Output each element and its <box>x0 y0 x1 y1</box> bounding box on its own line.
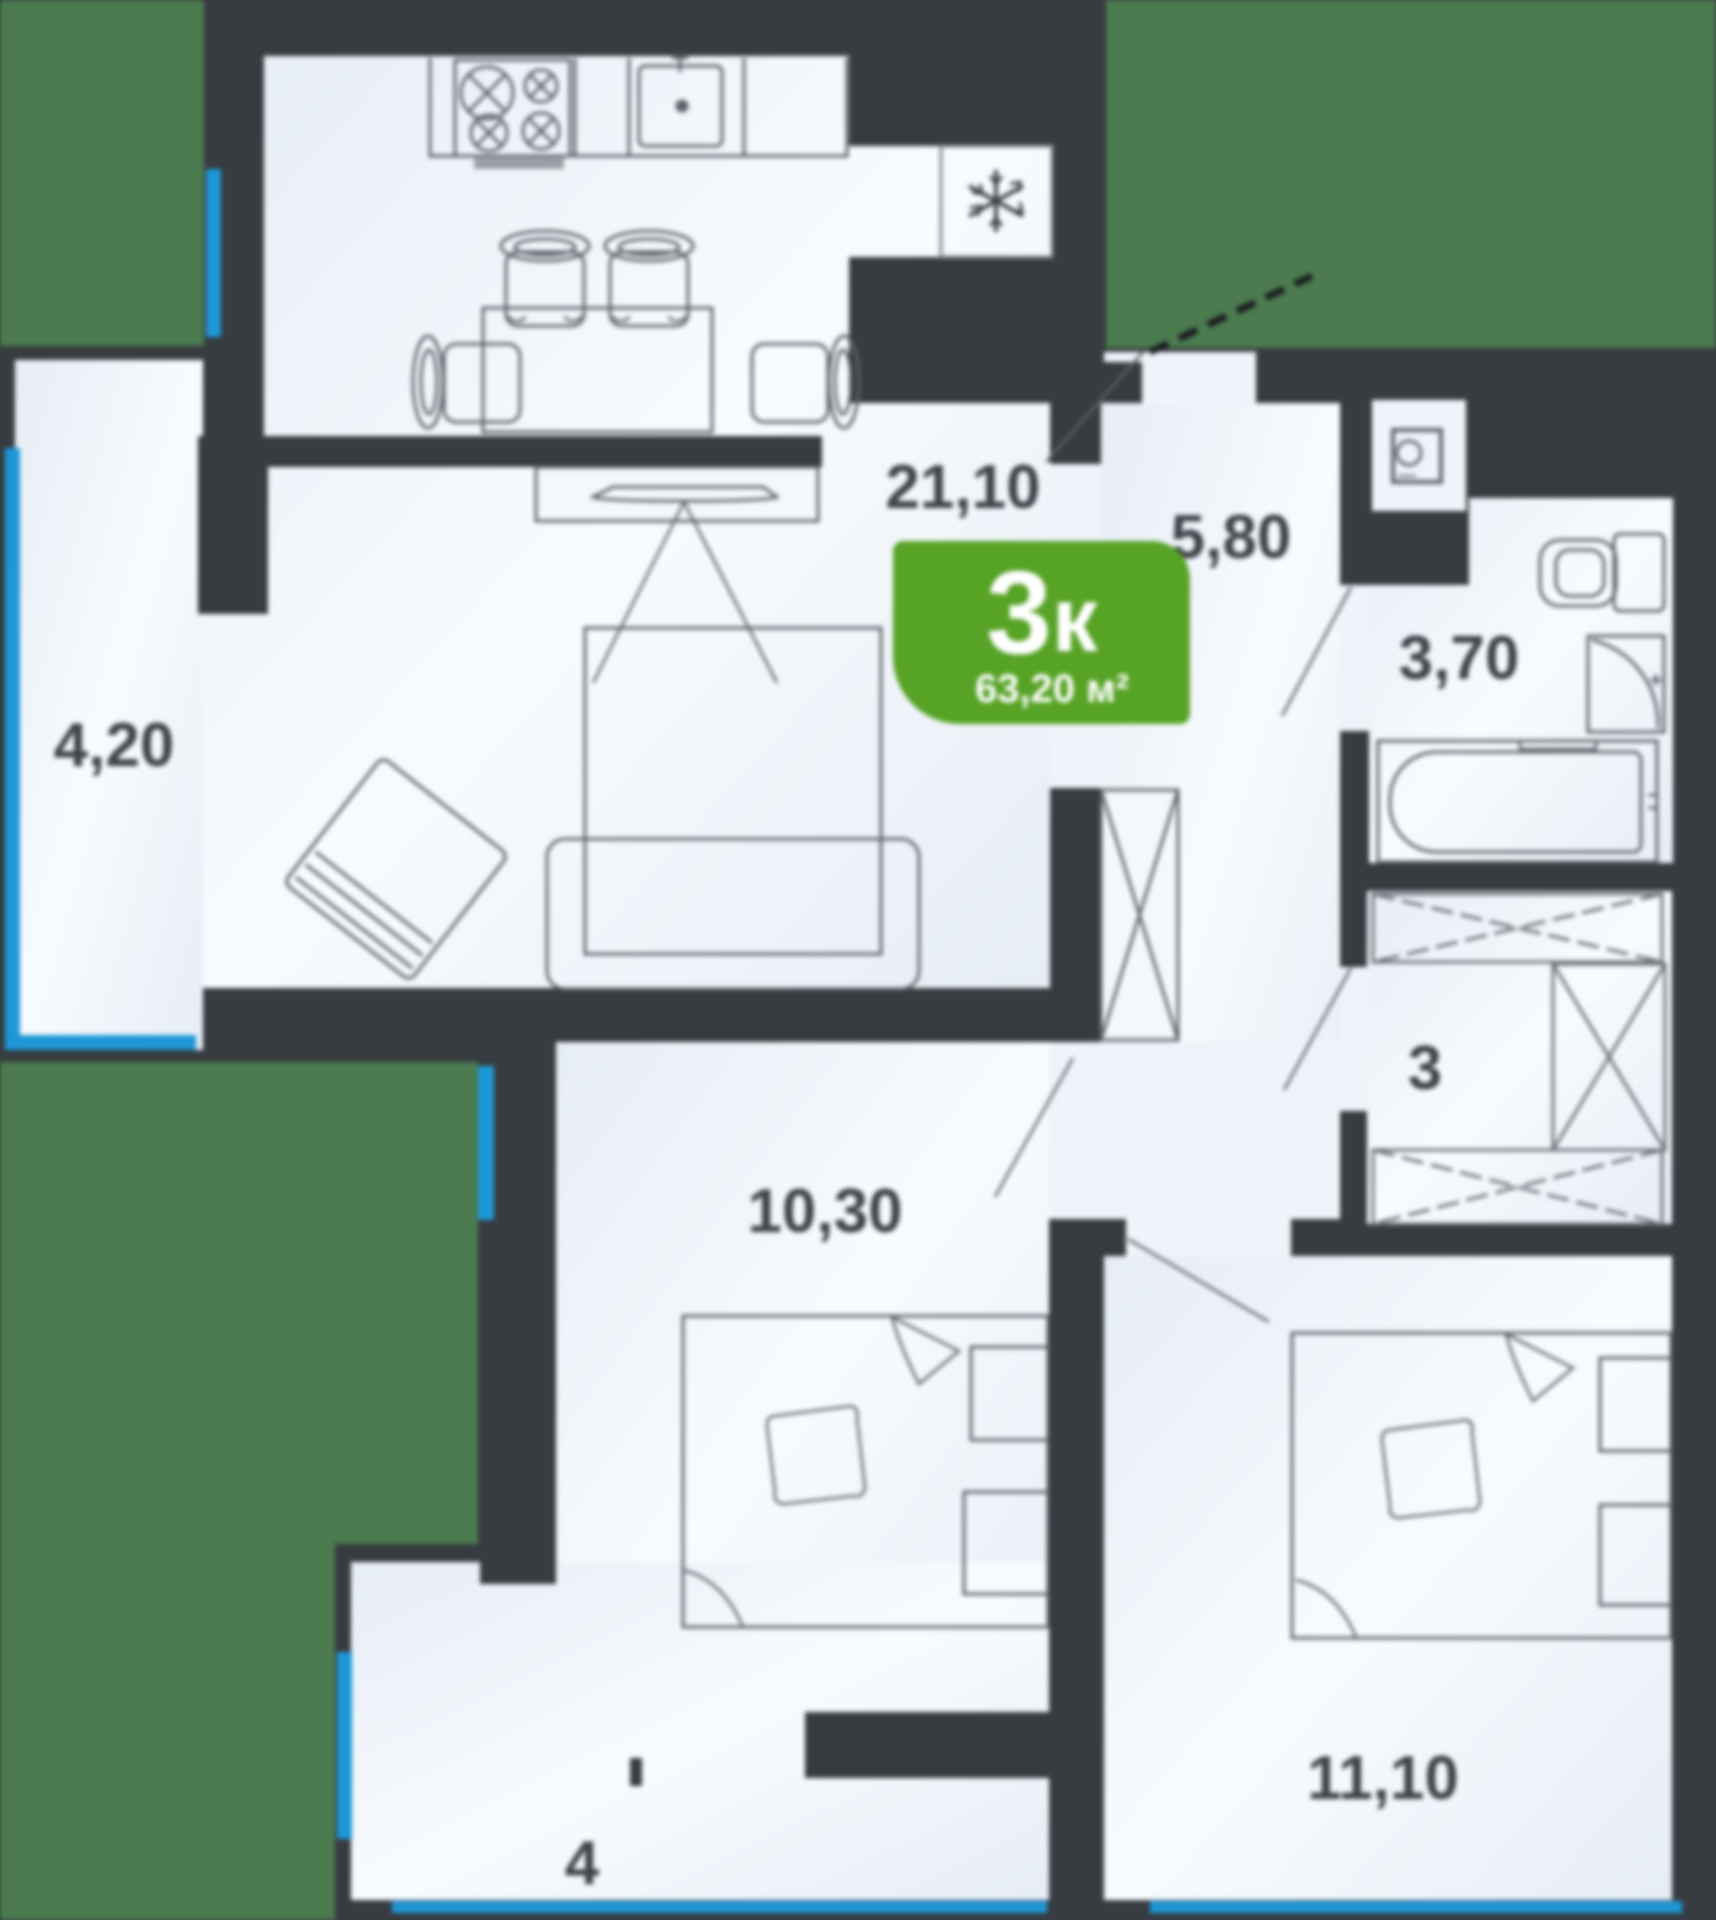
svg-text:5,80: 5,80 <box>1171 503 1292 572</box>
svg-text:4: 4 <box>565 1829 600 1898</box>
svg-text:4,20: 4,20 <box>54 711 175 780</box>
svg-text:10,30: 10,30 <box>747 1177 902 1246</box>
svg-text:3: 3 <box>1408 1034 1442 1103</box>
svg-text:11,10: 11,10 <box>1307 1744 1459 1813</box>
svg-text:3,70: 3,70 <box>1399 624 1520 693</box>
svg-text:21,10: 21,10 <box>885 453 1040 522</box>
svg-text:63,20 м²: 63,20 м² <box>975 667 1129 711</box>
